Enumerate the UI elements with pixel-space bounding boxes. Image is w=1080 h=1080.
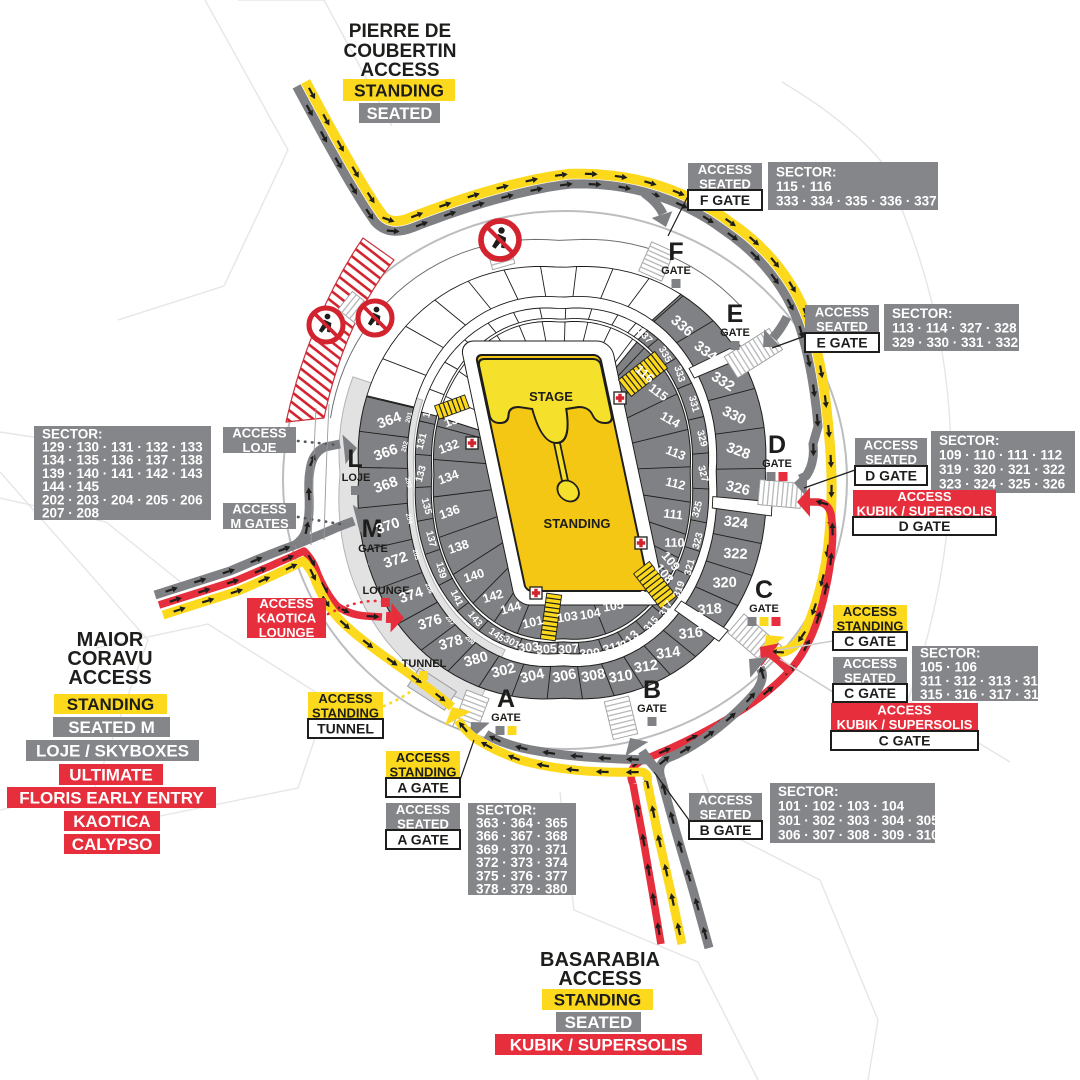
- svg-text:311 · 312 · 313 · 314: 311 · 312 · 313 · 314: [920, 673, 1046, 688]
- svg-text:KAOTICA: KAOTICA: [257, 611, 317, 626]
- svg-text:115 · 116: 115 · 116: [776, 179, 832, 194]
- svg-text:SECTOR:: SECTOR:: [776, 164, 837, 179]
- svg-text:M GATES: M GATES: [230, 516, 289, 531]
- svg-text:E GATE: E GATE: [816, 335, 867, 351]
- svg-text:ACCESS: ACCESS: [864, 437, 919, 452]
- svg-text:STANDING: STANDING: [544, 516, 611, 531]
- svg-text:SECTOR:: SECTOR:: [892, 306, 953, 321]
- svg-text:113 · 114 · 327 · 328: 113 · 114 · 327 · 328: [892, 320, 1017, 335]
- svg-text:333 · 334 · 335 · 336 · 337: 333 · 334 · 335 · 336 · 337: [776, 193, 937, 208]
- svg-text:ACCESS: ACCESS: [558, 968, 641, 990]
- svg-text:STANDING: STANDING: [67, 695, 155, 714]
- svg-text:312: 312: [633, 657, 659, 676]
- svg-text:LOJE: LOJE: [342, 472, 371, 484]
- svg-text:B GATE: B GATE: [700, 822, 752, 838]
- svg-text:ACCESS: ACCESS: [877, 702, 932, 717]
- svg-text:D GATE: D GATE: [865, 468, 917, 484]
- svg-text:SEATED: SEATED: [816, 319, 868, 334]
- svg-text:SEATED M: SEATED M: [68, 718, 155, 737]
- svg-text:STANDING: STANDING: [354, 80, 444, 100]
- svg-text:306 · 307 · 308 · 309 · 310: 306 · 307 · 308 · 309 · 310: [778, 828, 939, 843]
- svg-text:D GATE: D GATE: [899, 518, 951, 534]
- svg-text:KUBIK / SUPERSOLIS: KUBIK / SUPERSOLIS: [510, 1036, 688, 1055]
- svg-text:LOJE / SKYBOXES: LOJE / SKYBOXES: [36, 742, 189, 761]
- svg-text:ULTIMATE: ULTIMATE: [69, 766, 152, 785]
- svg-text:318: 318: [697, 601, 722, 619]
- svg-text:F GATE: F GATE: [700, 192, 750, 208]
- svg-text:KUBIK / SUPERSOLIS: KUBIK / SUPERSOLIS: [837, 717, 973, 732]
- svg-text:320: 320: [712, 575, 737, 592]
- svg-text:GATE: GATE: [749, 603, 779, 615]
- svg-text:ACCESS: ACCESS: [815, 304, 870, 319]
- svg-text:A: A: [497, 685, 515, 713]
- svg-text:ACCESS: ACCESS: [232, 425, 287, 440]
- svg-text:GATE: GATE: [720, 327, 750, 339]
- svg-text:378 · 379 · 380: 378 · 379 · 380: [476, 882, 568, 897]
- svg-text:GATE: GATE: [762, 458, 792, 470]
- svg-text:COUBERTIN: COUBERTIN: [344, 41, 457, 62]
- svg-text:E: E: [727, 300, 744, 328]
- svg-text:SECTOR:: SECTOR:: [778, 784, 839, 799]
- svg-text:316: 316: [678, 625, 704, 643]
- svg-text:323 · 324 · 325 · 326: 323 · 324 · 325 · 326: [939, 477, 1066, 492]
- svg-text:ACCESS: ACCESS: [68, 667, 151, 689]
- svg-text:FLORIS EARLY ENTRY: FLORIS EARLY ENTRY: [19, 789, 204, 808]
- svg-text:309: 309: [579, 646, 601, 662]
- svg-text:CALYPSO: CALYPSO: [72, 835, 153, 854]
- svg-text:ACCESS: ACCESS: [318, 691, 373, 706]
- svg-text:PIERRE DE: PIERRE DE: [349, 21, 451, 42]
- svg-text:GATE: GATE: [491, 712, 521, 724]
- svg-text:F: F: [668, 238, 683, 266]
- svg-text:C GATE: C GATE: [879, 733, 931, 749]
- svg-text:324: 324: [723, 513, 749, 532]
- svg-text:103: 103: [556, 609, 579, 626]
- svg-text:C GATE: C GATE: [844, 633, 896, 649]
- svg-text:A GATE: A GATE: [397, 832, 448, 848]
- svg-text:ACCESS: ACCESS: [843, 604, 898, 619]
- svg-text:STAGE: STAGE: [529, 389, 573, 404]
- svg-text:A GATE: A GATE: [397, 780, 448, 796]
- svg-text:GATE: GATE: [637, 703, 667, 715]
- svg-text:SECTOR:: SECTOR:: [920, 646, 981, 661]
- svg-text:TUNNEL: TUNNEL: [402, 658, 447, 670]
- svg-text:ACCESS: ACCESS: [897, 489, 952, 504]
- svg-text:101 · 102 · 103 · 104: 101 · 102 · 103 · 104: [778, 799, 905, 814]
- svg-text:319 · 320 · 321 · 322: 319 · 320 · 321 · 322: [939, 462, 1065, 477]
- svg-text:C GATE: C GATE: [844, 685, 896, 701]
- svg-text:SEATED: SEATED: [565, 1013, 633, 1032]
- svg-text:LOUNGE: LOUNGE: [259, 625, 315, 640]
- svg-text:ACCESS: ACCESS: [259, 596, 314, 611]
- svg-text:SEATED: SEATED: [367, 105, 433, 123]
- svg-text:207 · 208: 207 · 208: [42, 506, 100, 521]
- svg-text:307: 307: [557, 641, 579, 657]
- svg-text:C: C: [755, 576, 773, 604]
- svg-text:109 · 110 · 111 · 112: 109 · 110 · 111 · 112: [939, 448, 1062, 463]
- svg-text:301 · 302 · 303 · 304 · 305: 301 · 302 · 303 · 304 · 305: [778, 813, 939, 828]
- svg-text:KAOTICA: KAOTICA: [73, 812, 150, 831]
- svg-text:SEATED: SEATED: [700, 807, 752, 822]
- svg-text:111: 111: [663, 506, 684, 522]
- svg-text:SEATED: SEATED: [865, 452, 917, 467]
- svg-text:105 · 106: 105 · 106: [920, 660, 978, 675]
- svg-text:GATE: GATE: [661, 265, 691, 277]
- svg-text:STANDING: STANDING: [554, 991, 642, 1010]
- svg-text:329 · 330 · 331 · 332: 329 · 330 · 331 · 332: [892, 335, 1018, 350]
- svg-text:322: 322: [723, 546, 748, 563]
- svg-text:D: D: [768, 431, 786, 459]
- svg-text:SECTOR:: SECTOR:: [939, 433, 1000, 448]
- svg-text:315 · 316 · 317 · 318: 315 · 316 · 317 · 318: [920, 687, 1047, 702]
- svg-text:110: 110: [664, 536, 684, 550]
- svg-text:GATE: GATE: [358, 543, 388, 555]
- svg-text:ACCESS: ACCESS: [698, 792, 753, 807]
- svg-text:LOJE: LOJE: [243, 440, 277, 455]
- svg-text:314: 314: [655, 644, 681, 663]
- svg-text:ACCESS: ACCESS: [232, 501, 287, 516]
- svg-text:ACCESS: ACCESS: [698, 162, 753, 177]
- svg-text:L: L: [347, 445, 362, 473]
- svg-text:TUNNEL: TUNNEL: [317, 721, 374, 737]
- svg-text:ACCESS: ACCESS: [360, 60, 439, 81]
- svg-text:ACCESS: ACCESS: [396, 802, 451, 817]
- svg-text:ACCESS: ACCESS: [843, 656, 898, 671]
- svg-text:ACCESS: ACCESS: [396, 750, 451, 765]
- svg-text:B: B: [643, 676, 661, 704]
